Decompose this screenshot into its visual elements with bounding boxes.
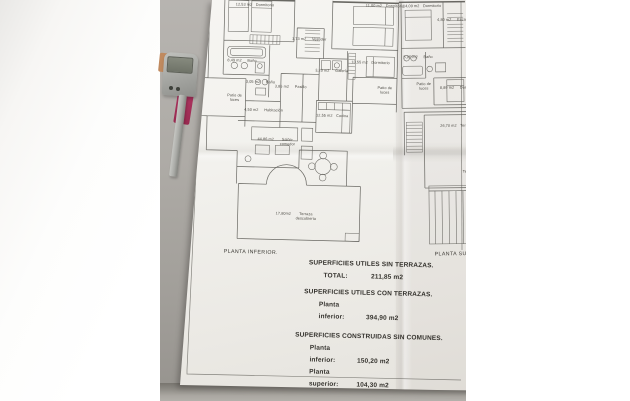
- summary-row: TOTAL:254,50 m2: [294, 389, 481, 401]
- summary-row: Planta inferior:394,90 m2: [303, 298, 483, 326]
- summary-row: TOTAL:211,85 m2: [308, 269, 483, 285]
- summary-heading: SUPERFICIES UTILES CON TERRAZAS.: [304, 287, 483, 299]
- summary-section: SUPERFICIES UTILES SIN TERRAZAS.TOTAL:21…: [308, 258, 483, 285]
- summary-row: Planta superior:104,30 m2: [294, 365, 482, 394]
- surface-summary-text: SUPERFICIES UTILES SIN TERRAZAS.TOTAL:21…: [290, 258, 484, 401]
- summary-section: SUPERFICIES CONSTRUIDAS SIN COMUNES.Plan…: [294, 331, 483, 401]
- photo-scene: Dormitorio12,53 m2Dormitorio11,00 m2Vest…: [0, 0, 630, 401]
- summary-section: SUPERFICIES UTILES CON TERRAZAS.Planta i…: [303, 287, 483, 326]
- overexposed-area: [466, 0, 630, 401]
- surface-summary-block: SUPERFICIES UTILES SIN TERRAZAS.TOTAL:21…: [291, 258, 484, 383]
